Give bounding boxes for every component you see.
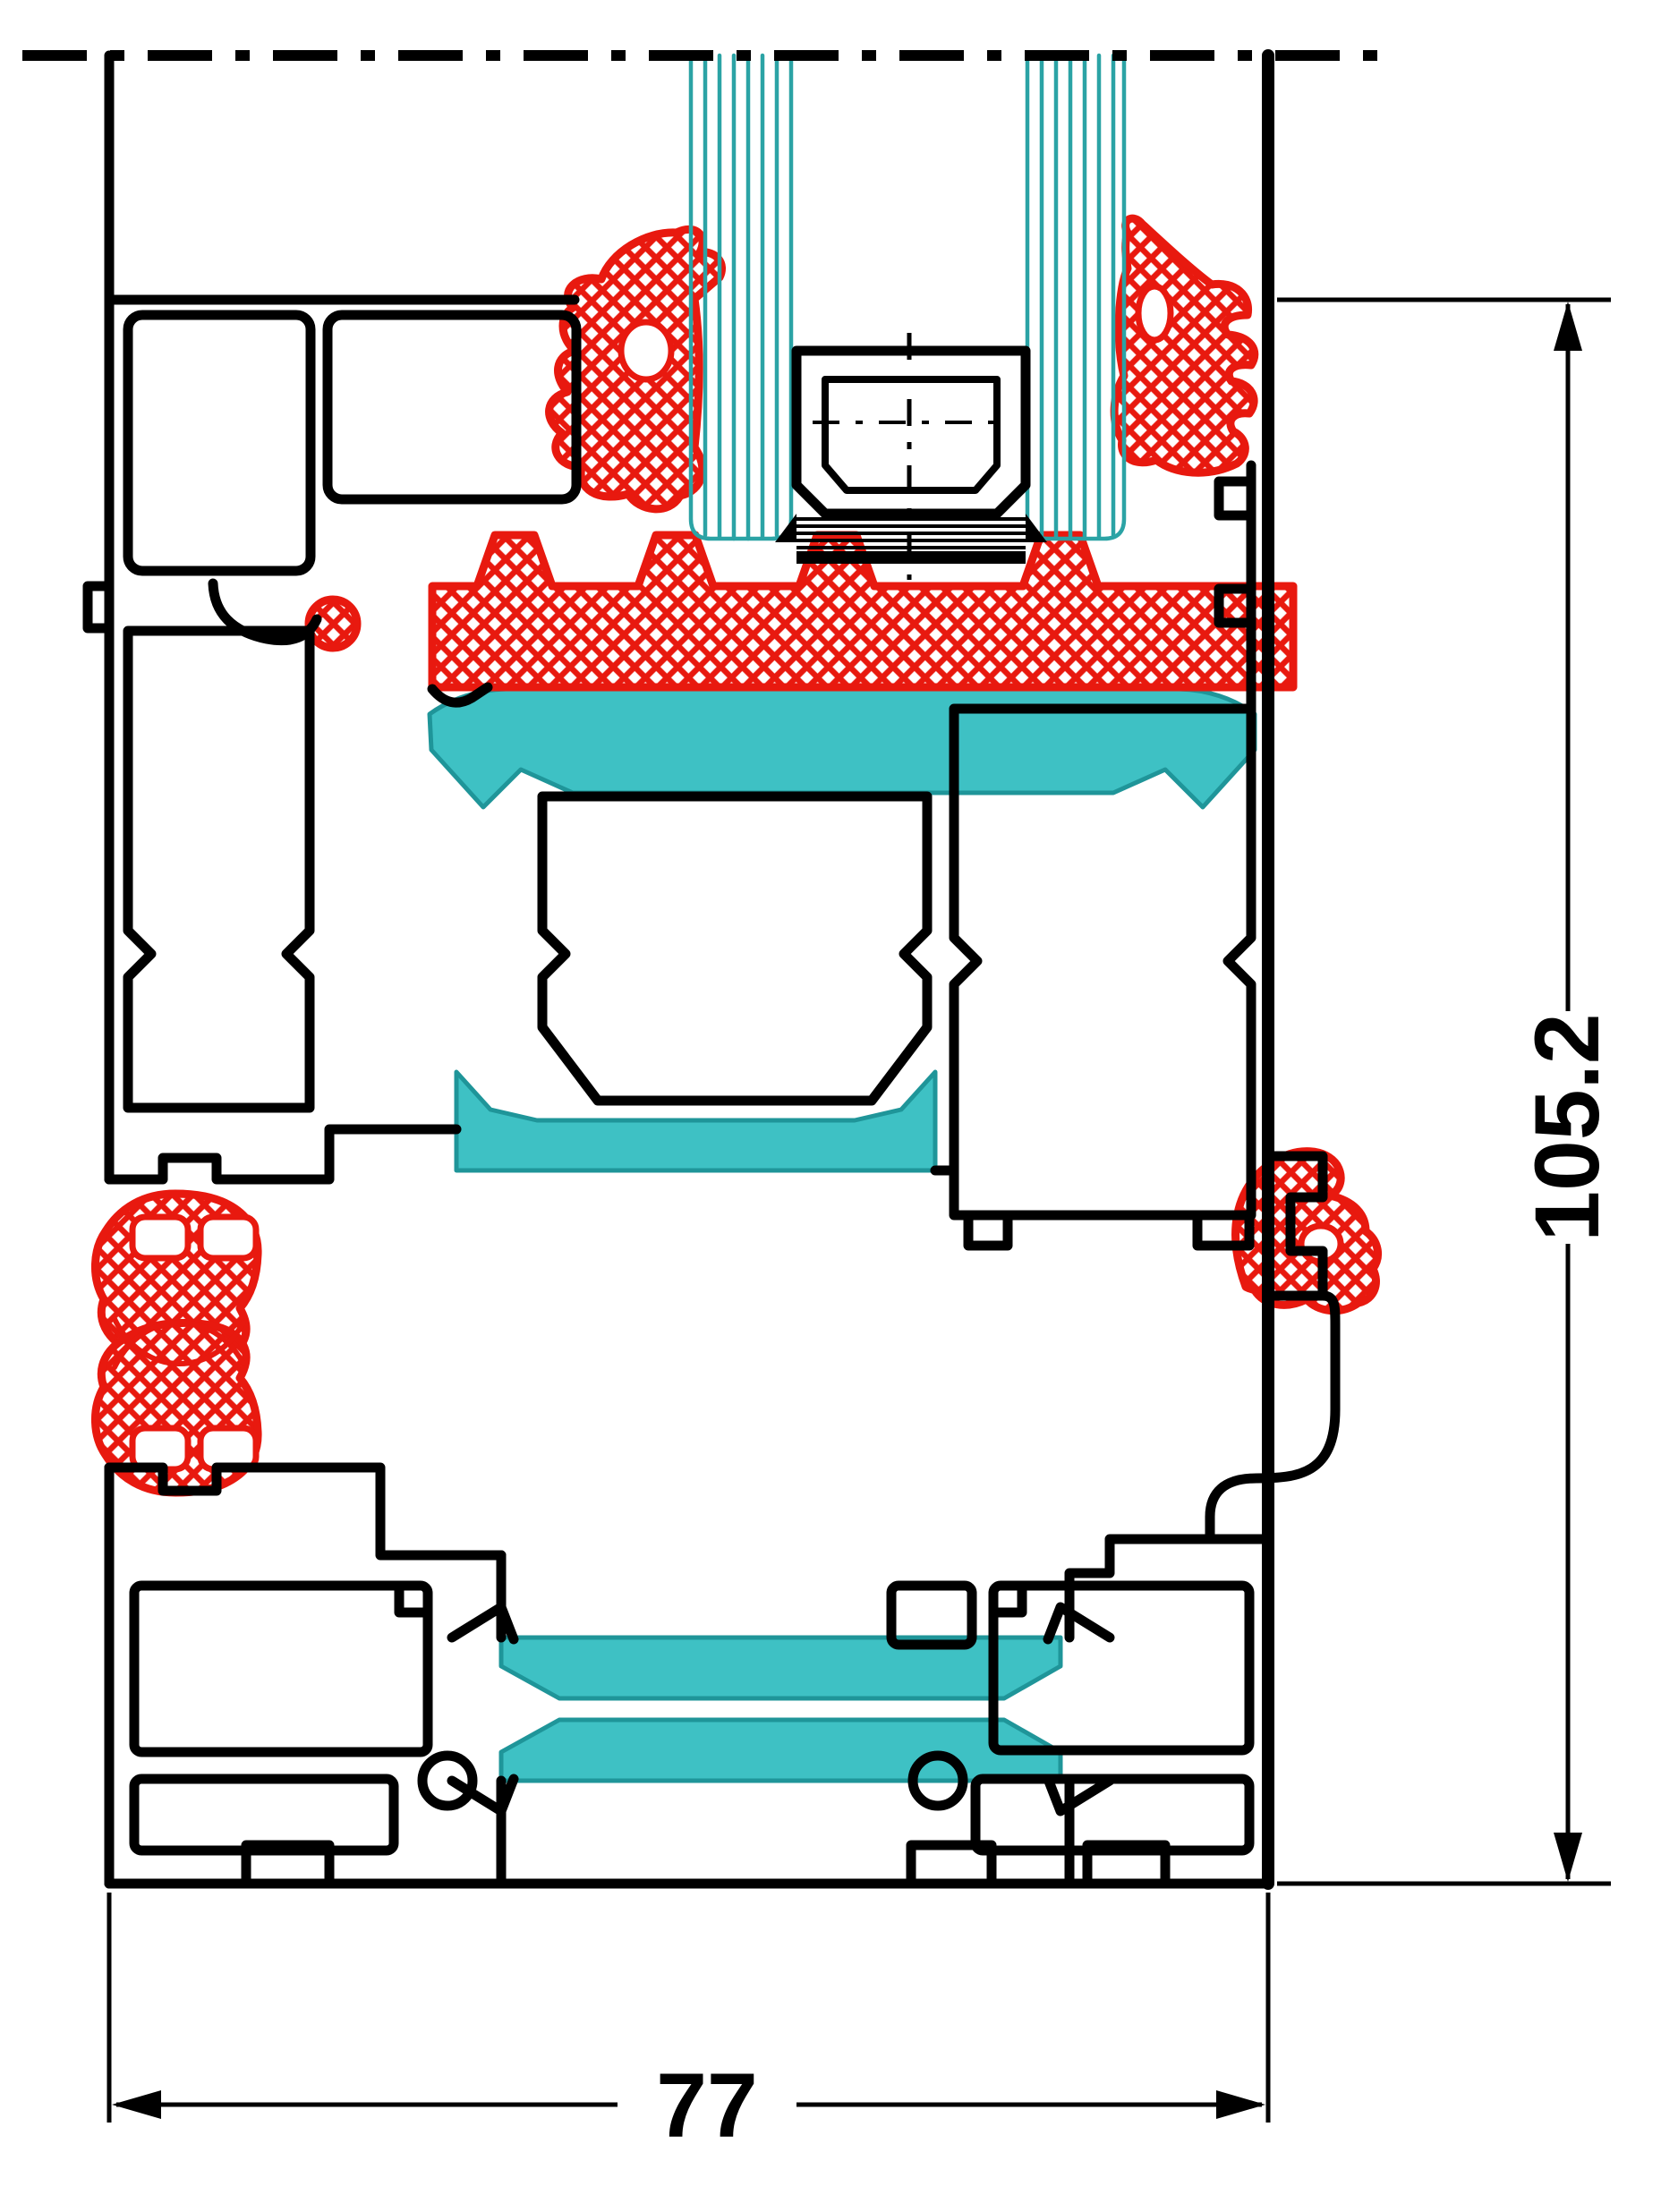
center-gasket-hole (132, 1217, 188, 1258)
center-gasket-hole (200, 1217, 256, 1258)
frame-upper-thermal-break (501, 1638, 1060, 1698)
profile-section-drawing: 105.2 77 (0, 0, 1661, 2212)
height-dimension-label: 105.2 (1516, 1013, 1618, 1241)
drawing-canvas: 105.2 77 (0, 0, 1661, 2212)
glazing-gasket-right-hole (1138, 286, 1171, 340)
frame-lower-thermal-break (501, 1720, 1060, 1781)
glazing-gasket-left-hole (621, 322, 671, 379)
width-dimension-label: 77 (656, 2055, 757, 2157)
